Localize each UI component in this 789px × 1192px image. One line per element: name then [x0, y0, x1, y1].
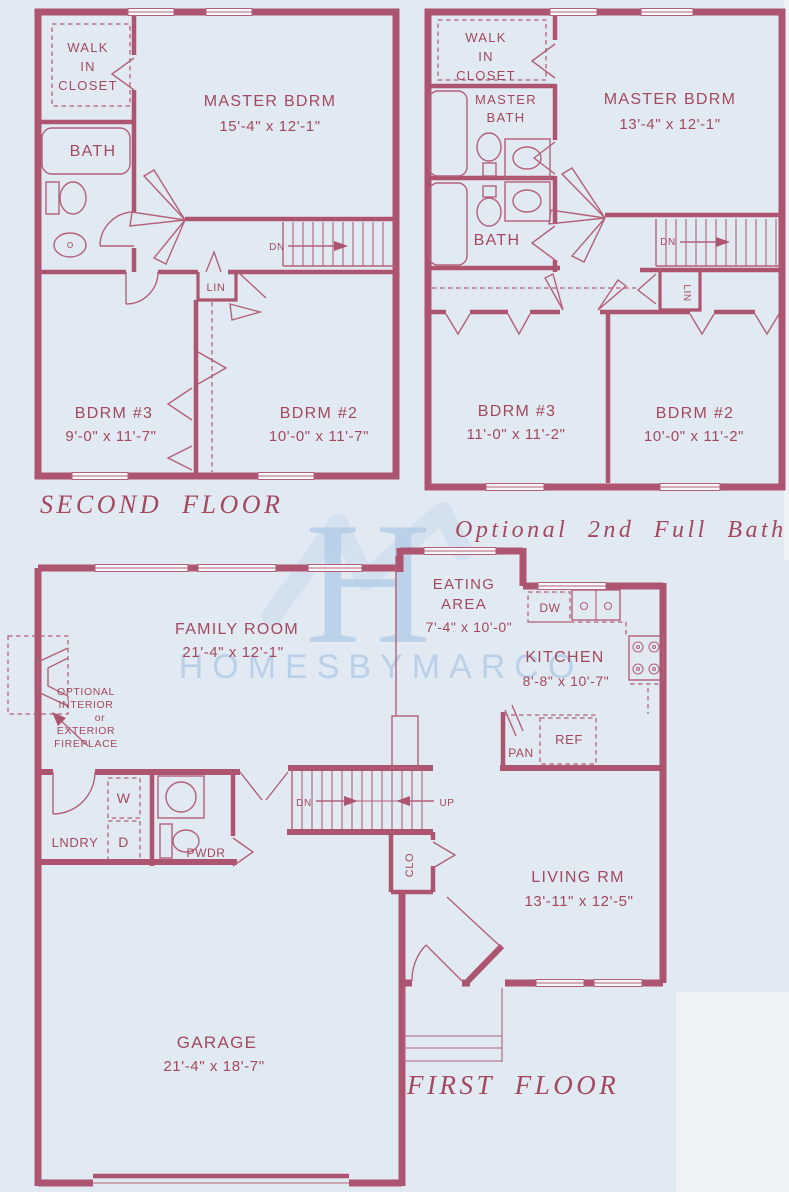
scan-edge: [676, 992, 789, 1192]
dryer-label: D: [118, 834, 129, 850]
eating-area-dims: 7'-4" x 10'-0": [426, 619, 513, 635]
washer-label: W: [117, 790, 132, 806]
bdrm2-dims: 10'-0" x 11'-2": [644, 428, 744, 445]
door-mark: [168, 388, 192, 420]
door-swing: [100, 212, 134, 246]
kitchen-label: KITCHEN: [525, 649, 604, 666]
window: [72, 473, 128, 480]
second-floor-title: SECOND FLOOR: [40, 490, 283, 519]
first-floor-title: FIRST FLOOR: [406, 1070, 619, 1100]
window: [258, 473, 314, 480]
closet-door-marks: [446, 314, 779, 334]
window: [424, 548, 496, 555]
master-bdrm-dims: 13'-4" x 12'-1": [619, 116, 720, 133]
window: [536, 980, 584, 987]
bdrm2-dims: 10'-0" x 11'-7": [269, 428, 369, 445]
linen-label: LIN: [681, 284, 692, 301]
refrigerator-label: REF: [555, 732, 583, 747]
sink-icon: [505, 139, 550, 178]
bdrm2-label: BDRM #2: [280, 405, 358, 422]
door-mark: [532, 226, 555, 260]
master-bdrm-label: MASTER BDRM: [204, 93, 337, 110]
laundry-label: LNDRY: [52, 835, 99, 850]
bdrm3-label: BDRM #3: [75, 405, 153, 422]
stair-arrow-icon: [334, 241, 348, 251]
window: [95, 565, 188, 572]
kitchen-dims: 8'-8" x 10'-7": [523, 673, 610, 689]
double-door-mark: [130, 170, 185, 264]
toilet-icon: [46, 182, 86, 214]
sink-icon: [505, 182, 550, 221]
fireplace-note: OPTIONAL: [57, 686, 115, 698]
door-swing: [53, 772, 95, 814]
window: [550, 9, 597, 16]
walk-in-closet-label: CLOSET: [58, 78, 118, 93]
fireplace-note: EXTERIOR: [57, 725, 115, 737]
toilet-icon: [477, 133, 501, 176]
porch-steps: [404, 988, 502, 1062]
fireplace-note: or: [95, 712, 106, 724]
garage-label: GARAGE: [177, 1033, 258, 1052]
window: [206, 9, 252, 16]
second-floor-plan: WALK IN CLOSET BATH MASTER BDRM 15'-4" x…: [38, 9, 397, 520]
pantry-label: PAN: [508, 746, 534, 760]
up-label: UP: [439, 798, 454, 809]
window: [128, 9, 174, 16]
bath-label: BATH: [70, 143, 117, 160]
staircase: [283, 222, 396, 266]
door-mark: [545, 274, 626, 310]
fireplace-note: FIREPLACE: [54, 738, 118, 750]
living-room-label: LIVING RM: [531, 869, 625, 886]
window: [198, 565, 276, 572]
fireplace-note: INTERIOR: [59, 699, 114, 711]
walk-in-closet-label: WALK: [465, 30, 507, 45]
window: [594, 980, 642, 987]
eating-area-label: EATING: [433, 576, 496, 593]
door-mark: [168, 446, 192, 470]
master-bath-label: MASTER: [475, 92, 537, 107]
family-room-label: FAMILY ROOM: [175, 621, 299, 638]
front-door-swing: [412, 945, 462, 981]
bathtub-icon: [429, 91, 467, 176]
dishwasher-label: DW: [539, 601, 560, 615]
optional-second-floor-plan: WALK IN CLOSET MASTER BATH MASTER BDRM 1…: [428, 9, 787, 544]
living-room-dims: 13'-11" x 12'-5": [524, 893, 633, 910]
pantry-door-mark: [505, 705, 523, 736]
angled-foyer-line: [447, 897, 501, 947]
toilet-icon: [477, 186, 501, 226]
garage-dims: 21'-4" x 18'-7": [163, 1058, 264, 1075]
bath-label: BATH: [474, 232, 521, 249]
master-bath-label: BATH: [487, 110, 526, 125]
bdrm2-label: BDRM #2: [656, 405, 734, 422]
sink-icon: [158, 776, 204, 818]
door-mark: [433, 842, 455, 868]
bathtub-icon: [429, 183, 467, 265]
linen-label: LIN: [207, 282, 226, 294]
door-mark: [240, 772, 288, 800]
double-sink-icon: [572, 590, 620, 620]
closet-label: CLO: [404, 853, 416, 877]
window: [308, 565, 362, 572]
dn-label: DN: [296, 798, 312, 809]
window: [486, 484, 544, 491]
eating-area-label: AREA: [441, 596, 487, 613]
bdrm3-label: BDRM #3: [478, 403, 556, 420]
optional-floor-title: Optional 2nd Full Bath: [455, 517, 787, 543]
window: [538, 583, 606, 590]
master-bdrm-dims: 15'-4" x 12'-1": [219, 118, 320, 135]
stair-up-arrow-icon: [396, 796, 410, 806]
walk-in-closet-label: WALK: [67, 40, 109, 55]
walk-in-closet-label: CLOSET: [456, 68, 516, 83]
bdrm3-dims: 11'-0" x 11'-2": [466, 426, 565, 443]
bdrm3-dims: 9'-0" x 11'-7": [65, 428, 156, 445]
staircase: [292, 770, 434, 830]
stair-arrow-icon: [716, 237, 730, 247]
stove-icon: [629, 636, 663, 680]
powder-label: PWDR: [186, 846, 225, 860]
door-mark: [534, 142, 555, 174]
half-wall: [392, 716, 418, 768]
walk-in-closet-label: IN: [80, 59, 96, 74]
family-room-dims: 21'-4" x 12'-1": [182, 644, 283, 661]
door-mark: [532, 44, 555, 78]
linen-closet-wall: [660, 270, 700, 310]
stair-dn-arrow-icon: [344, 796, 358, 806]
master-bdrm-label: MASTER BDRM: [604, 91, 737, 108]
door-mark: [206, 252, 221, 272]
dn-label: DN: [269, 242, 285, 253]
walk-in-closet-label: IN: [478, 49, 494, 64]
dn-label: DN: [660, 237, 676, 248]
sink-icon: [54, 233, 86, 257]
floor-plan-sheet: H HOMESBYMARCO: [0, 0, 789, 1192]
wall-segment: [38, 768, 663, 862]
door-mark: [638, 274, 656, 304]
window: [660, 484, 720, 491]
angled-entry-wall: [468, 946, 502, 981]
door-swing: [126, 272, 158, 304]
double-door-mark: [549, 168, 605, 262]
window: [641, 9, 693, 16]
